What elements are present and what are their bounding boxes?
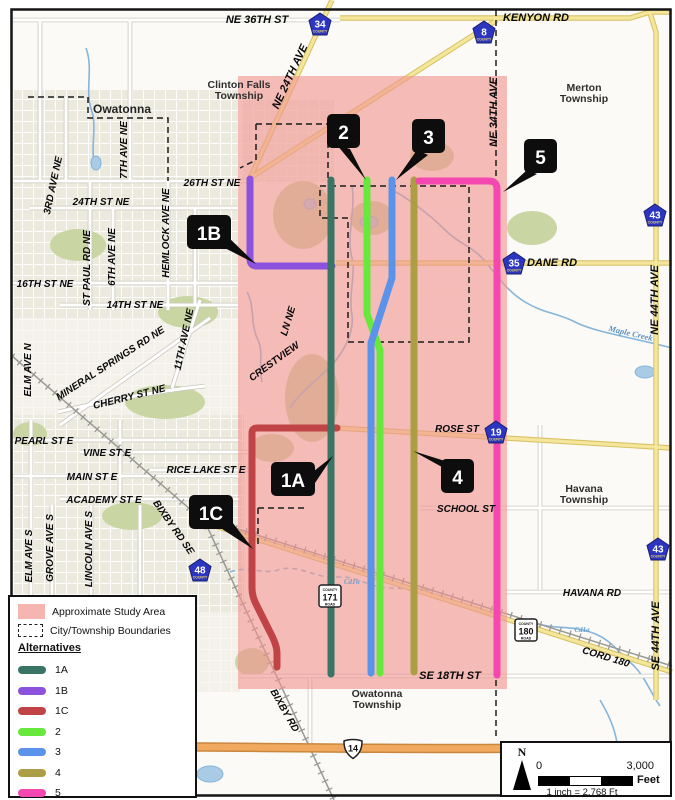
street-label: 6TH AVE NE: [107, 228, 118, 286]
township-label: Township: [560, 93, 608, 105]
shield-caption: ROAD: [325, 603, 336, 607]
scale-ratio: 1 inch = 2,768 Ft: [502, 787, 662, 798]
legend-alt-4: 4: [18, 763, 189, 784]
street-label: RICE LAKE ST E: [167, 465, 246, 476]
scale-numbers: 0 3,000: [536, 760, 654, 772]
shield-caption: ROAD: [521, 637, 532, 641]
north-arrow: N: [510, 745, 534, 790]
scale-unit: Feet: [637, 774, 660, 786]
street-label: 7TH AVE NE: [119, 121, 130, 179]
township-label: Township: [560, 494, 608, 506]
street-label: VINE ST E: [83, 448, 132, 459]
boundary-swatch: [18, 624, 43, 637]
street-label: KENYON RD: [503, 12, 569, 24]
shield-caption: COUNTY: [313, 30, 328, 34]
street-label: NE 36TH ST: [226, 14, 290, 26]
legend-label: City/Township Boundaries: [50, 625, 171, 637]
callout-label: 1B: [197, 224, 221, 245]
study-area-swatch: [18, 604, 45, 619]
legend-label: 4: [55, 767, 61, 779]
legend-label: 3: [55, 746, 61, 758]
street-label: 26TH ST NE: [183, 178, 241, 189]
legend-label: 1B: [55, 685, 68, 697]
creek-label: Cd1w: [344, 578, 361, 586]
shield-caption: COUNTY: [193, 576, 208, 580]
shield-caption: COUNTY: [651, 555, 666, 559]
county-180-shield-icon: COUNTY 180 ROAD: [515, 619, 537, 641]
street-label: GROVE AVE S: [45, 514, 56, 582]
legend-alt-5: 5: [18, 783, 189, 800]
callout-1b: 1B: [187, 215, 231, 249]
legend-alt-1a: 1A: [18, 660, 189, 681]
street-label: LINCOLN AVE S: [84, 511, 95, 587]
callout-label: 5: [535, 148, 546, 169]
street-label: 24TH ST NE: [72, 197, 130, 208]
legend-alt-1c: 1C: [18, 701, 189, 722]
alt-4-swatch: [18, 769, 46, 777]
legend-label: 1A: [55, 664, 68, 676]
street-label: 16TH ST NE: [17, 279, 74, 290]
scale-segment: [539, 777, 570, 785]
legend-alt-1b: 1B: [18, 681, 189, 702]
street-label: SCHOOL ST: [437, 504, 496, 515]
street-label: ELM AVE N: [23, 343, 34, 397]
street-label: HEMLOCK AVE NE: [161, 188, 172, 278]
street-label: NE 34TH AVE: [488, 76, 500, 146]
scale-bar-box: N 0 3,000 Feet 1 inch = 2,768 Ft: [500, 741, 672, 797]
alternatives-heading: Alternatives: [18, 642, 189, 654]
scale-end: 3,000: [626, 760, 654, 772]
callout-3: 3: [412, 119, 445, 153]
legend-label: Approximate Study Area: [52, 606, 165, 618]
alt-2-swatch: [18, 728, 46, 736]
shield-number: 14: [348, 744, 358, 754]
alt-1a-swatch: [18, 666, 46, 674]
legend-alt-3: 3: [18, 742, 189, 763]
legend-label: 2: [55, 726, 61, 738]
callout-5: 5: [524, 139, 557, 173]
shield-caption: COUNTY: [507, 269, 522, 273]
callout-label: 4: [452, 468, 463, 489]
alt-5-swatch: [18, 789, 46, 797]
scale-bar: [538, 776, 633, 786]
township-label: Township: [215, 90, 263, 102]
legend-label: 1C: [55, 705, 68, 717]
street-label: ROSE ST: [435, 424, 480, 435]
north-label: N: [510, 745, 534, 760]
street-label: ACADEMY ST E: [65, 495, 142, 506]
callout-label: 2: [338, 123, 349, 144]
callout-4: 4: [441, 459, 474, 493]
shield-number: 171: [322, 593, 337, 603]
street-label: DANE RD: [527, 257, 577, 269]
callout-label: 1A: [281, 471, 306, 492]
creek-label: Cd1a: [574, 626, 590, 634]
legend-study-area: Approximate Study Area: [18, 604, 189, 619]
township-label: Township: [353, 699, 401, 711]
county-171-shield-icon: COUNTY 171 ROAD: [319, 585, 341, 607]
street-label: PEARL ST E: [15, 436, 74, 447]
street-label: 14TH ST NE: [107, 300, 164, 311]
shield-caption: COUNTY: [477, 38, 492, 42]
shield-caption: COUNTY: [489, 438, 504, 442]
street-label: ST PAUL RD NE: [82, 230, 93, 306]
street-label: NE 44TH AVE: [649, 264, 661, 334]
street-label: SE 18TH ST: [419, 670, 482, 682]
callout-2: 2: [327, 114, 360, 148]
scale-start: 0: [536, 760, 542, 772]
scale-segment: [570, 777, 601, 785]
legend-alt-2: 2: [18, 722, 189, 743]
alt-3-swatch: [18, 748, 46, 756]
street-label: ELM AVE S: [24, 529, 35, 582]
callout-1a: 1A: [271, 462, 315, 496]
map-legend: Approximate Study Area City/Township Bou…: [8, 595, 197, 798]
city-label: Owatonna: [93, 102, 151, 116]
street-label: MAIN ST E: [67, 472, 118, 483]
street-label: SE 44TH AVE: [650, 601, 662, 671]
study-area-map: NE 36TH ST KENYON RD NE 24TH AVE NE 34TH…: [0, 0, 675, 800]
street-label: HAVANA RD: [563, 588, 621, 599]
callout-label: 1C: [199, 504, 224, 525]
shield-caption: COUNTY: [323, 588, 338, 592]
legend-label: 5: [55, 787, 61, 799]
alt-1c-swatch: [18, 707, 46, 715]
callout-label: 3: [423, 128, 434, 149]
shield-caption: COUNTY: [519, 622, 534, 626]
alt-1b-swatch: [18, 687, 46, 695]
scale-segment: [601, 777, 632, 785]
legend-boundaries: City/Township Boundaries: [18, 624, 189, 637]
shield-caption: COUNTY: [648, 221, 663, 225]
callout-1c: 1C: [189, 495, 233, 529]
north-arrow-icon: [513, 760, 531, 790]
shield-number: 180: [518, 627, 533, 637]
